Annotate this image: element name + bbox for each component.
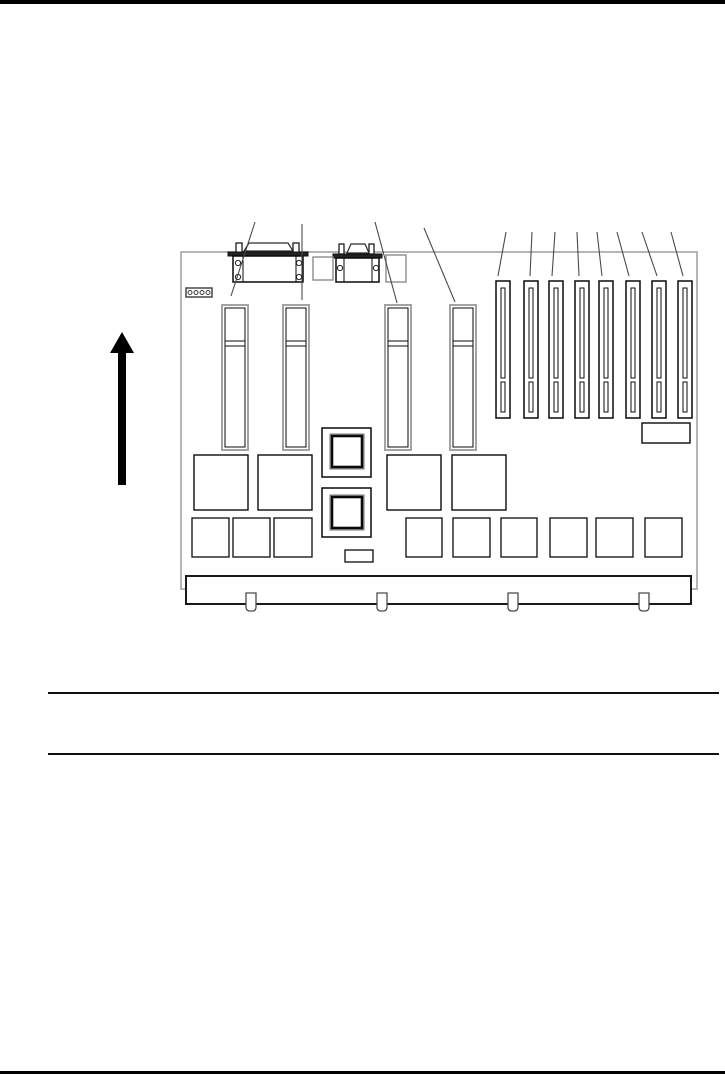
chip-small [453, 518, 490, 557]
mounting-tab [639, 593, 649, 611]
chip-small [550, 518, 587, 557]
parallel-port-connector-shell [244, 243, 293, 251]
mounting-tab [377, 593, 387, 611]
serial-port-connector-shell [347, 244, 369, 253]
chip-small [192, 518, 229, 557]
parallel-port-connector-screw [296, 260, 301, 265]
bottom-bar [0, 1071, 725, 1074]
serial-port-connector-post [369, 244, 374, 254]
expansion-slot [652, 281, 666, 418]
board-edge-bar [186, 576, 691, 604]
jumper-block [186, 288, 212, 297]
parallel-port-connector-screw [235, 260, 240, 265]
chip-large [258, 455, 312, 510]
memory-slot [222, 305, 248, 450]
slot-id-rect [642, 423, 690, 443]
chip-small [501, 518, 537, 557]
chip-small [274, 518, 312, 557]
mounting-tab [246, 593, 256, 611]
serial-port-connector-screw [373, 265, 378, 270]
parallel-port-connector-screw [296, 274, 301, 279]
orientation-arrow-head [110, 332, 134, 353]
expansion-slot [626, 281, 640, 418]
expansion-slot [678, 281, 692, 418]
serial-port-connector-post [339, 244, 344, 254]
page [0, 0, 725, 1075]
connector-pad [386, 255, 406, 282]
chip-small [596, 518, 633, 557]
mounting-tab [508, 593, 518, 611]
orientation-arrow-shaft [118, 352, 126, 485]
memory-slot [450, 305, 476, 450]
chip-small [645, 518, 682, 557]
chip-large [452, 455, 506, 510]
chip-large [387, 455, 441, 510]
serial-port-connector-body [336, 258, 379, 282]
expansion-slot [549, 281, 563, 418]
note-rule-top [48, 692, 719, 694]
expansion-slot [524, 281, 538, 418]
expansion-slot [599, 281, 613, 418]
expansion-slot [575, 281, 589, 418]
chip-small [233, 518, 270, 557]
connector-pad [313, 257, 333, 280]
serial-port-connector-screw [337, 265, 342, 270]
chip-small [406, 518, 442, 557]
chip-large [194, 455, 248, 510]
board-diagram [0, 0, 725, 1075]
memory-slot [283, 305, 309, 450]
note-rule-bottom [48, 753, 719, 755]
expansion-slot [496, 281, 510, 418]
chip-tiny [345, 550, 373, 562]
memory-slot [385, 305, 411, 450]
